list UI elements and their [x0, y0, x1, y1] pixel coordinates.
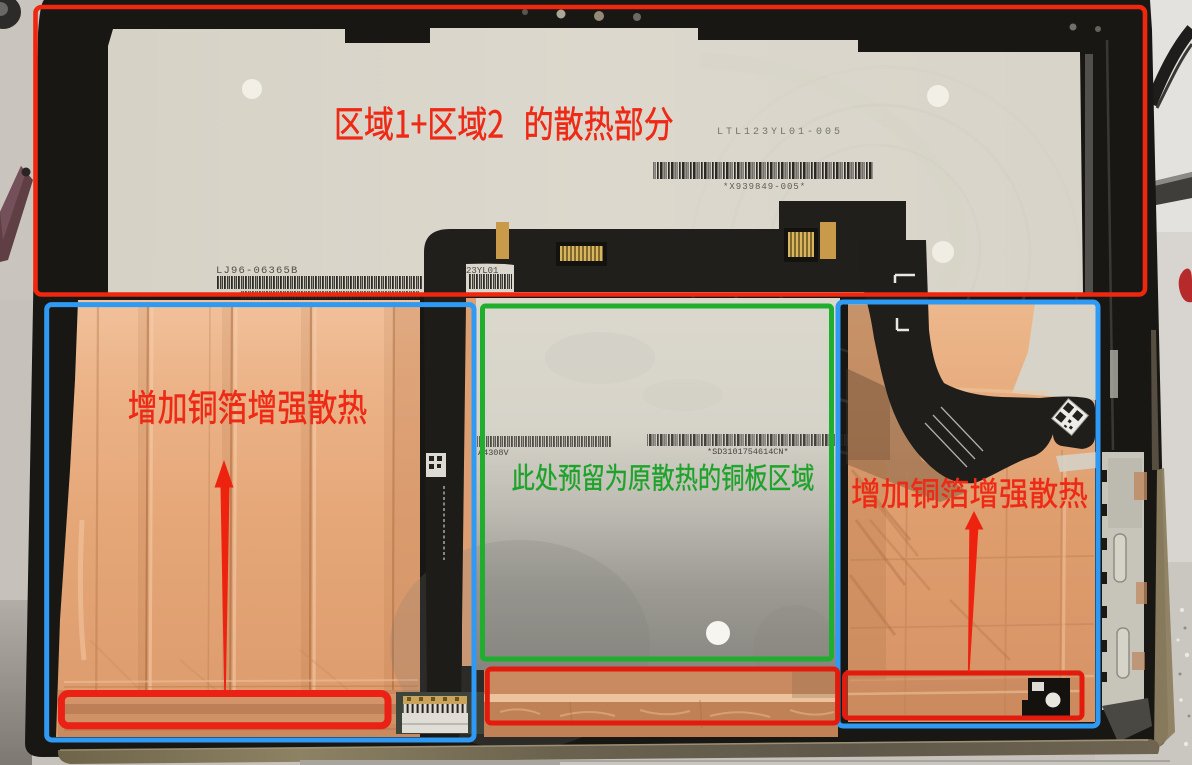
svg-text:LTL123YL01-005: LTL123YL01-005	[717, 127, 843, 138]
svg-text:*SD3101754614CN*: *SD3101754614CN*	[707, 447, 789, 457]
svg-text:23YL01: 23YL01	[466, 266, 498, 276]
svg-text:*X939849-005*: *X939849-005*	[723, 182, 806, 192]
svg-text:LJ96-06365B: LJ96-06365B	[216, 265, 299, 277]
